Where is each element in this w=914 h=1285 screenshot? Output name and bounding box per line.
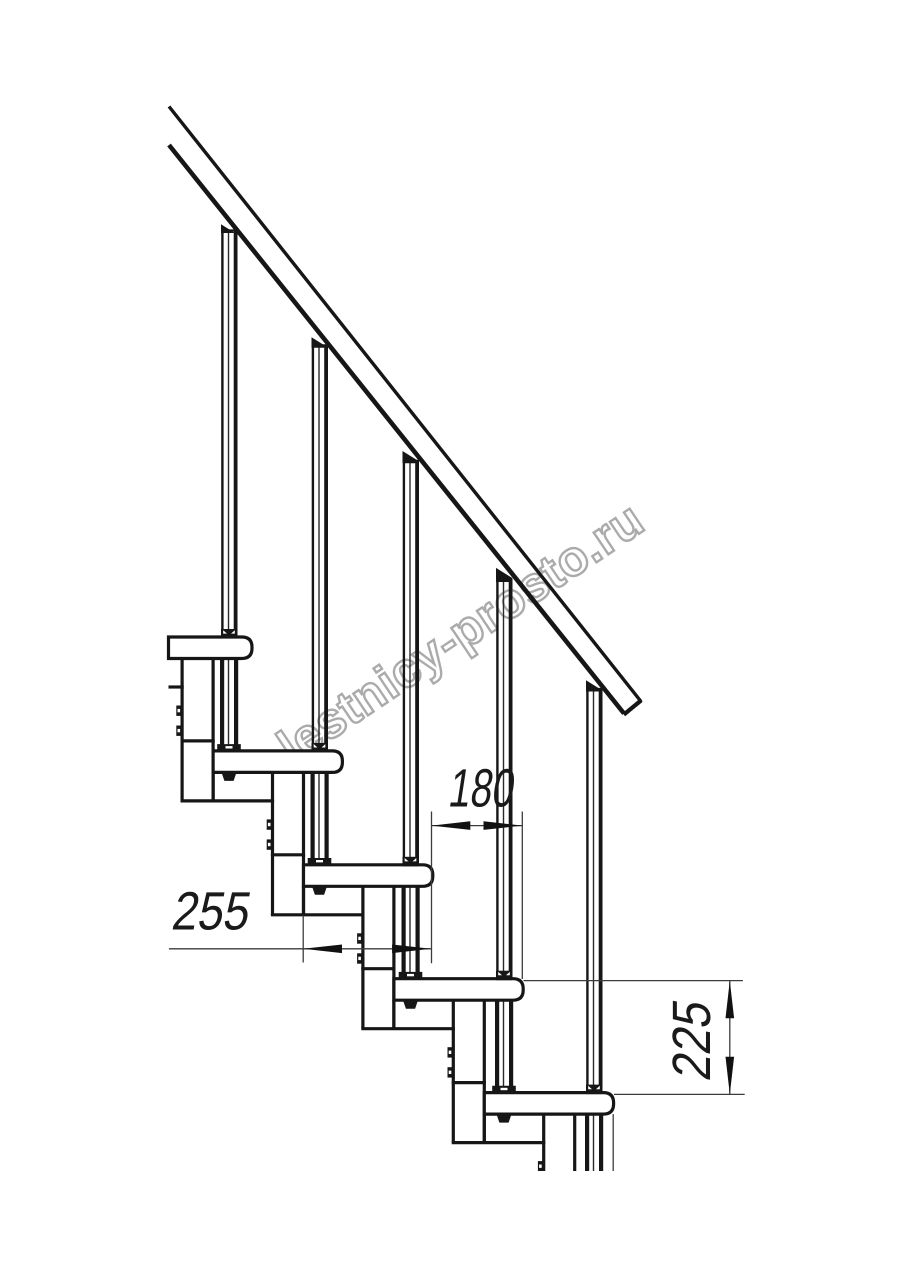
svg-text:225: 225 [662,995,722,1084]
svg-text:255: 255 [168,882,255,942]
svg-text:180: 180 [445,759,519,819]
